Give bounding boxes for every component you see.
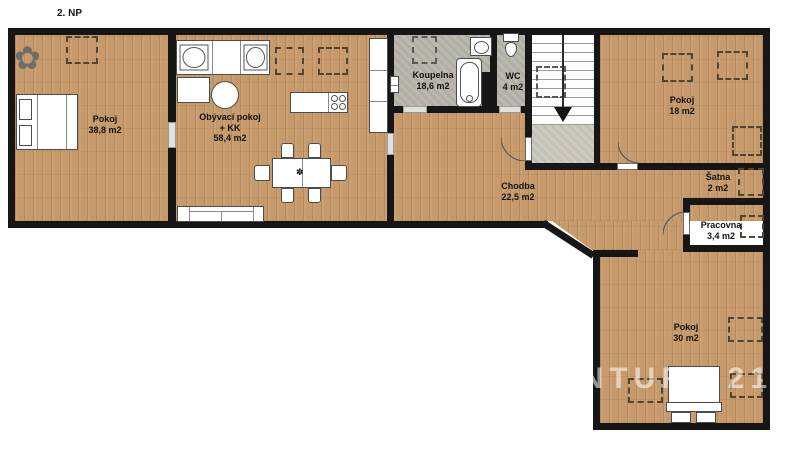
room-label-pracovna: Pracovna3,4 m2 [693, 220, 749, 241]
room-label-pokoj-left: Pokoj38,8 m2 [63, 114, 147, 135]
wall-satna-pracovna [683, 198, 770, 205]
washbasin-icon [470, 37, 492, 56]
rug-icon [662, 53, 693, 82]
rug-icon [66, 36, 98, 64]
door-opening-wc [499, 106, 521, 113]
rug-icon [738, 168, 764, 196]
wall-bath-bottom-1 [394, 106, 403, 113]
stove-burner-icon [331, 95, 338, 102]
room-label-satna: Šatna2 m2 [698, 172, 738, 193]
wall-stairs-right [594, 28, 600, 170]
chair-icon [331, 165, 347, 181]
chair-icon [308, 188, 321, 203]
wall-pracovna-left-upper [683, 198, 690, 212]
plant-icon: ✿ [14, 42, 41, 74]
door-landing [525, 137, 532, 161]
room-label-obyvaci-pokoj: Obývací pokoj+ KK58,4 m2 [178, 112, 282, 144]
watermark-text: CENTURY 21 [528, 362, 773, 396]
rug-icon [732, 126, 762, 156]
door-arc-landing [501, 137, 525, 161]
wall-bath-pier [482, 72, 490, 113]
stove-burner-icon [331, 103, 338, 110]
chair-icon [281, 143, 294, 158]
wall-bedroom-living-upper [168, 35, 176, 122]
floor-title: 2. NP [57, 8, 82, 19]
wall-outer-room30-bottom [593, 423, 770, 430]
door-opening-bathroom [403, 106, 427, 113]
rug-icon [275, 47, 304, 75]
room-label-pokoj-top-right: Pokoj18 m2 [650, 95, 714, 116]
round-table-icon [211, 81, 239, 109]
floorplan-2np: ✿ ✽ [0, 0, 800, 450]
rug-icon [412, 36, 437, 64]
wall-living-hall-lower [387, 155, 394, 221]
kitchen-appliance [177, 77, 210, 103]
rug-icon [318, 47, 348, 75]
stair-direction-line [562, 35, 564, 109]
table-centerpiece-icon: ✽ [296, 168, 304, 177]
stove-burner-icon [339, 95, 346, 102]
room-label-chodba: Chodba22,5 m2 [486, 181, 550, 202]
door-arc-room18 [618, 142, 639, 163]
door-arc-pracovna [663, 212, 686, 235]
stair-down-arrow-icon [554, 107, 572, 122]
door-room18 [617, 163, 638, 170]
chair-icon [254, 165, 270, 181]
toilet-icon [503, 33, 519, 42]
wall-bedroom-living-lower [168, 148, 176, 221]
chair-icon [281, 188, 294, 203]
wall-room18-bottom-1 [525, 163, 617, 170]
kitchen-sink-icon [243, 44, 268, 71]
wall-hall-room30 [593, 250, 638, 257]
wall-outer-room30-left [593, 250, 600, 430]
door-opening-living [387, 133, 394, 155]
chair-icon [308, 143, 321, 158]
stair-landing [532, 125, 594, 163]
room-label-wc: WC4 m2 [494, 71, 532, 92]
kitchen-island-stove [290, 92, 348, 113]
door-opening-bedroom [168, 122, 176, 148]
room-label-koupelna: Koupelna18,6 m2 [396, 70, 470, 91]
rug-icon [717, 51, 748, 80]
bed-pillow [671, 412, 691, 423]
kitchen-sink-icon [179, 44, 209, 71]
stove-burner-icon [339, 103, 346, 110]
room-label-pokoj-bottom-right: Pokoj30 m2 [654, 322, 718, 343]
wardrobe-cabinet [369, 38, 388, 133]
bed-pillow [19, 99, 32, 120]
wall-outer-top [8, 28, 770, 35]
bed-pillow [19, 125, 32, 146]
rug-icon [728, 317, 763, 342]
wall-outer-bottom-left [8, 221, 548, 228]
bed-pillow [696, 412, 716, 423]
sofa-icon [177, 206, 264, 222]
wall-pracovna-bottom [683, 245, 770, 252]
